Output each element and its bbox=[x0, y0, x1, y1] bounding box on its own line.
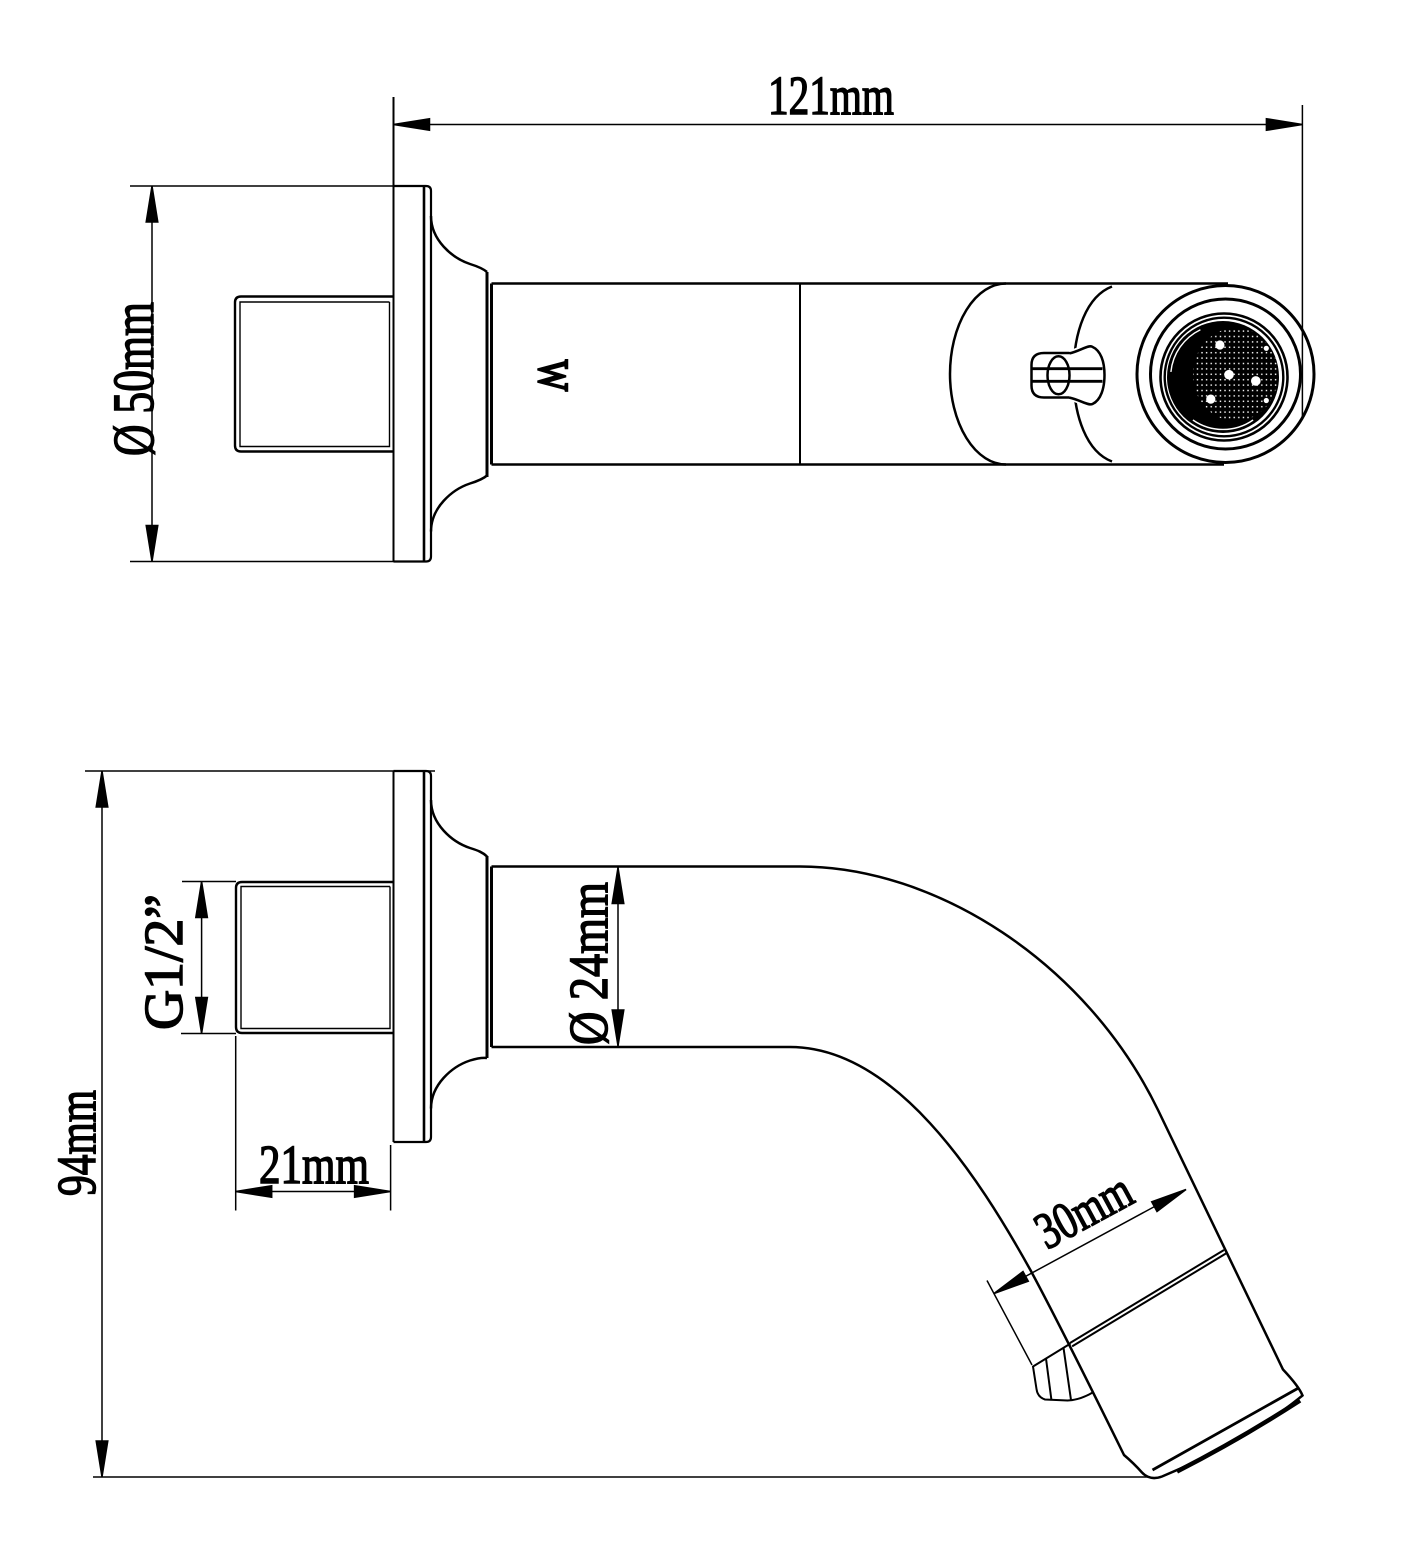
svg-text:Ø 24mm: Ø 24mm bbox=[558, 882, 619, 1045]
svg-text:21mm: 21mm bbox=[259, 1134, 369, 1195]
svg-text:G1/2”: G1/2” bbox=[133, 894, 194, 1030]
svg-text:Ø 50mm: Ø 50mm bbox=[101, 302, 166, 456]
svg-text:121mm: 121mm bbox=[768, 65, 894, 126]
svg-text:W: W bbox=[529, 360, 575, 391]
svg-text:94mm: 94mm bbox=[46, 1090, 107, 1196]
